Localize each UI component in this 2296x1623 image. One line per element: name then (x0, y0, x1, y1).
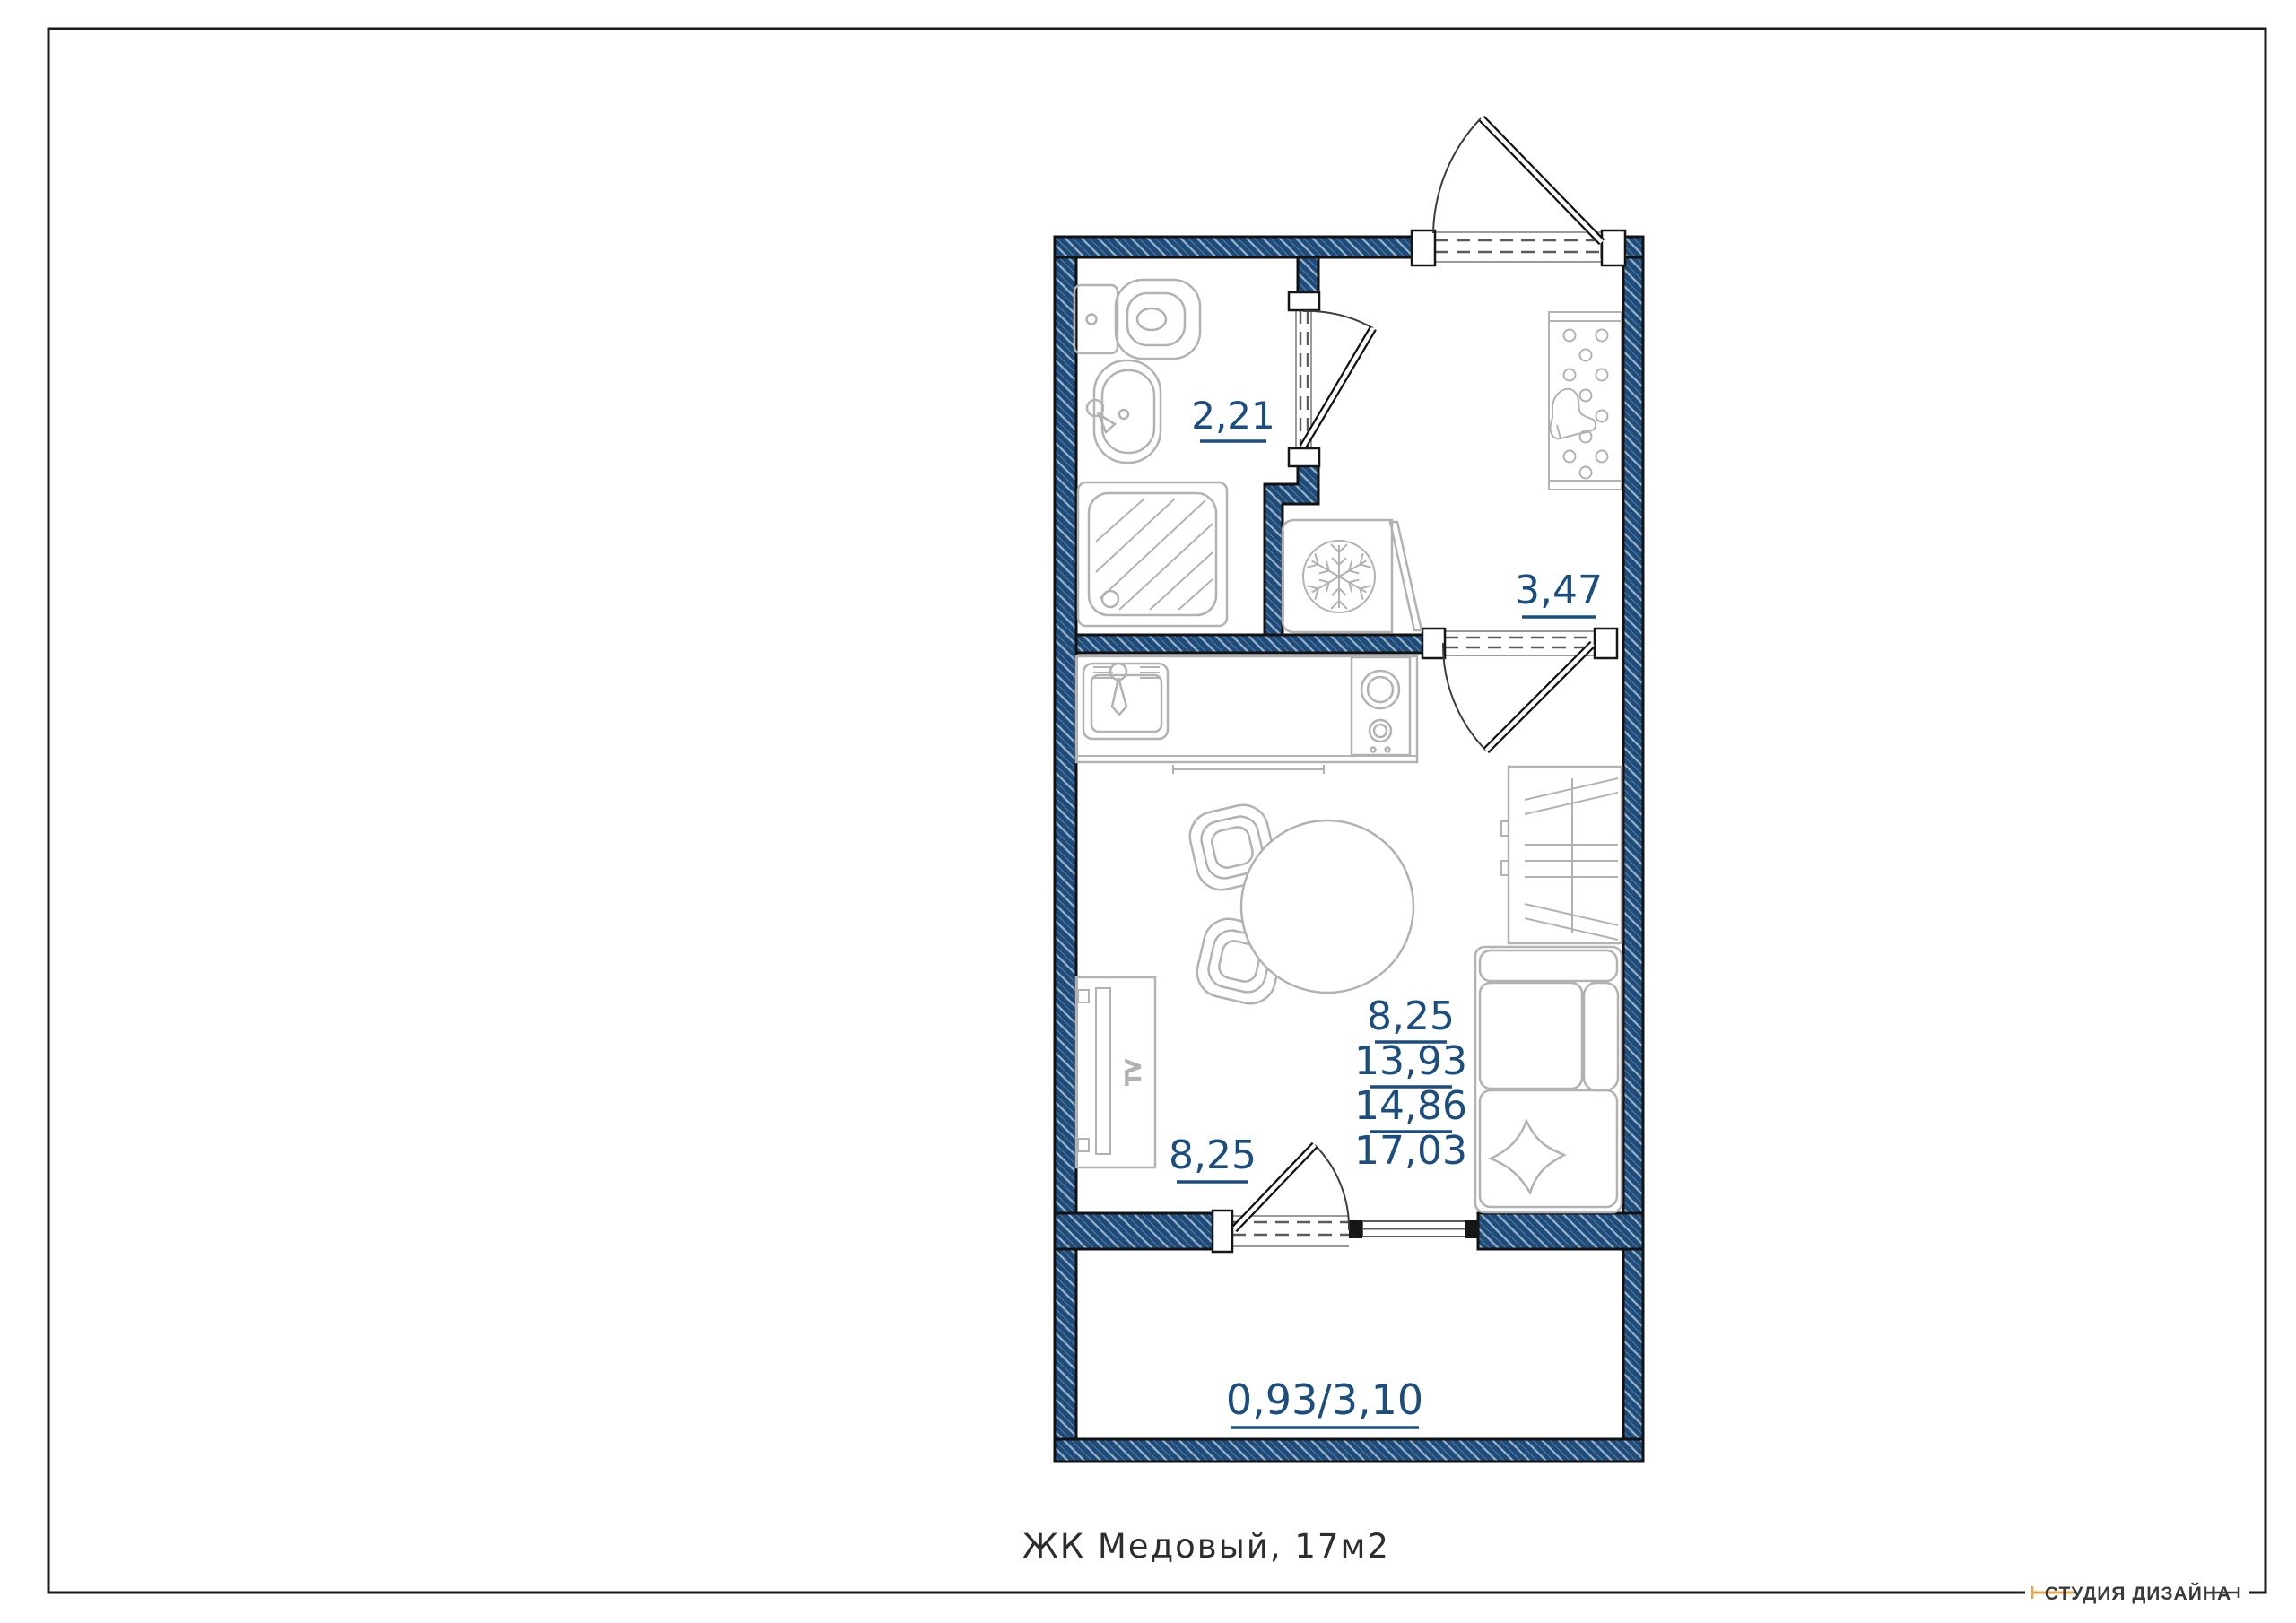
wall-bathroom-lower (1265, 465, 1318, 635)
shower (1078, 482, 1227, 626)
shoe-icon (1551, 389, 1596, 438)
room-jamb-right (1595, 629, 1617, 658)
bath-jamb-bottom (1289, 448, 1319, 466)
entry-jamb-right (1602, 230, 1625, 265)
stack-label-4: 17,03 (1354, 1128, 1467, 1174)
bathroom-area-label: 2,21 (1191, 394, 1275, 438)
kitchen-sink (1083, 664, 1168, 739)
tv-label: TV (1123, 1060, 1144, 1086)
page-border-frame (48, 29, 2266, 1593)
floor-plan-canvas: TV (0, 0, 2296, 1623)
bathroom-sink (1087, 360, 1161, 463)
room-door (1443, 643, 1593, 751)
pillow (1491, 1121, 1564, 1193)
sofa (1475, 947, 1622, 1212)
toilet (1074, 280, 1200, 359)
dining-table (1241, 820, 1413, 993)
bathroom-door (1303, 311, 1373, 447)
kitchen-counter (1076, 656, 1417, 774)
snowflake-icon (1307, 544, 1370, 609)
stack-label-3: 14,86 (1354, 1083, 1467, 1129)
bath-jamb-top (1289, 292, 1319, 310)
fridge (1283, 520, 1422, 632)
shoe-cabinet (1549, 312, 1622, 490)
balcony-window (1349, 1220, 1479, 1238)
wall-balcony-bottom (1055, 1439, 1643, 1462)
wardrobe (1501, 767, 1622, 943)
balcony-jamb-left (1213, 1211, 1232, 1252)
studio-logo-text: СТУДИЯ ДИЗАЙНА (2045, 1583, 2231, 1604)
wall-interior-horizontal (1076, 635, 1424, 653)
tv-stand: TV (1076, 977, 1155, 1167)
wall-bathroom-stub (1298, 257, 1318, 294)
stack-label-2: 13,93 (1354, 1038, 1467, 1084)
studio-logo: СТУДИЯ ДИЗАЙНА (2032, 1583, 2239, 1604)
wall-left (1055, 237, 1076, 1462)
room-jamb-left (1422, 629, 1445, 658)
floor-plan-page: TV (0, 0, 2296, 1623)
entry-jamb-left (1412, 230, 1435, 265)
wall-top (1055, 237, 1432, 257)
wall-bottom-right-segment (1478, 1213, 1643, 1249)
cooktop (1352, 657, 1410, 755)
entry-door (1433, 118, 1602, 242)
living-area-label: 8,25 (1169, 1133, 1257, 1178)
window-end-block (1465, 1220, 1479, 1238)
window-end-block (1349, 1220, 1362, 1238)
wall-right (1623, 237, 1643, 1462)
stack-label-1: 8,25 (1367, 994, 1455, 1039)
hallway-area-label: 3,47 (1515, 568, 1603, 613)
balcony-area-label: 0,93/3,10 (1226, 1376, 1423, 1424)
wall-bottom-left-segment (1055, 1213, 1216, 1249)
plan-title: ЖК Медовый, 17м2 (1022, 1527, 1390, 1566)
